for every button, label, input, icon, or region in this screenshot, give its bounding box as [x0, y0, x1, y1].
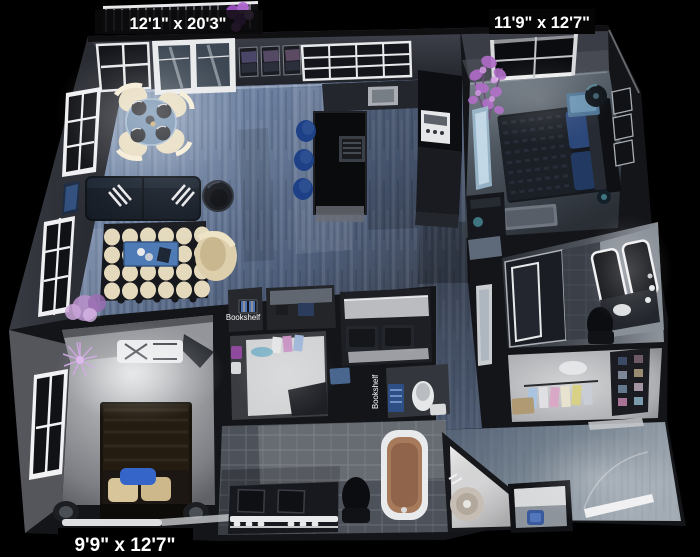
svg-text:11'9" x 12'7": 11'9" x 12'7" — [494, 14, 590, 32]
svg-text:9'9" x 12'7": 9'9" x 12'7" — [74, 535, 175, 556]
svg-text:12'1" x 20'3": 12'1" x 20'3" — [130, 15, 227, 33]
svg-text:Bookshelf: Bookshelf — [226, 313, 261, 322]
svg-text:Bookshelf: Bookshelf — [371, 374, 380, 409]
